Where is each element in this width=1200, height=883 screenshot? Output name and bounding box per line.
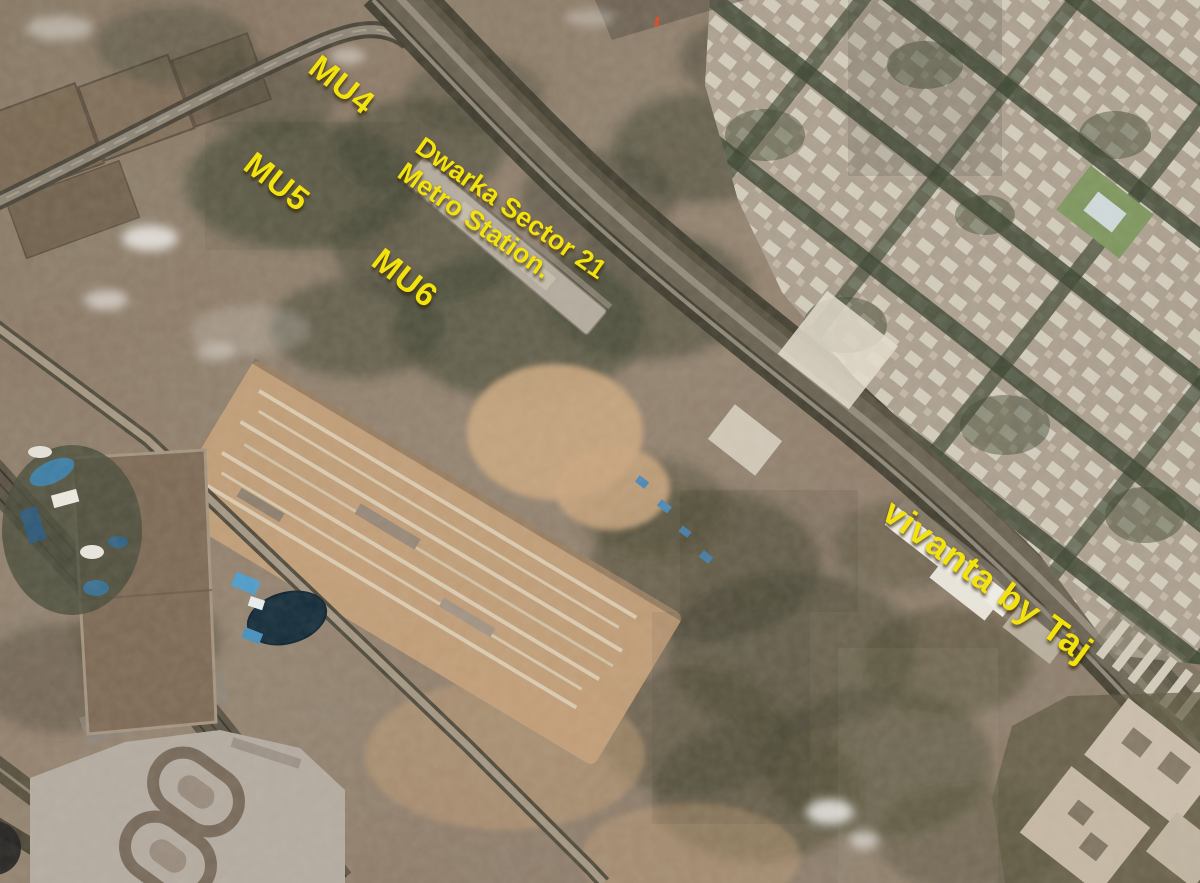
annotated-satellite-map: MU4 MU5 MU6 Dwarka Sector 21 Metro Stati… [0,0,1200,883]
image-grain [0,0,1200,883]
satellite-imagery [0,0,1200,883]
